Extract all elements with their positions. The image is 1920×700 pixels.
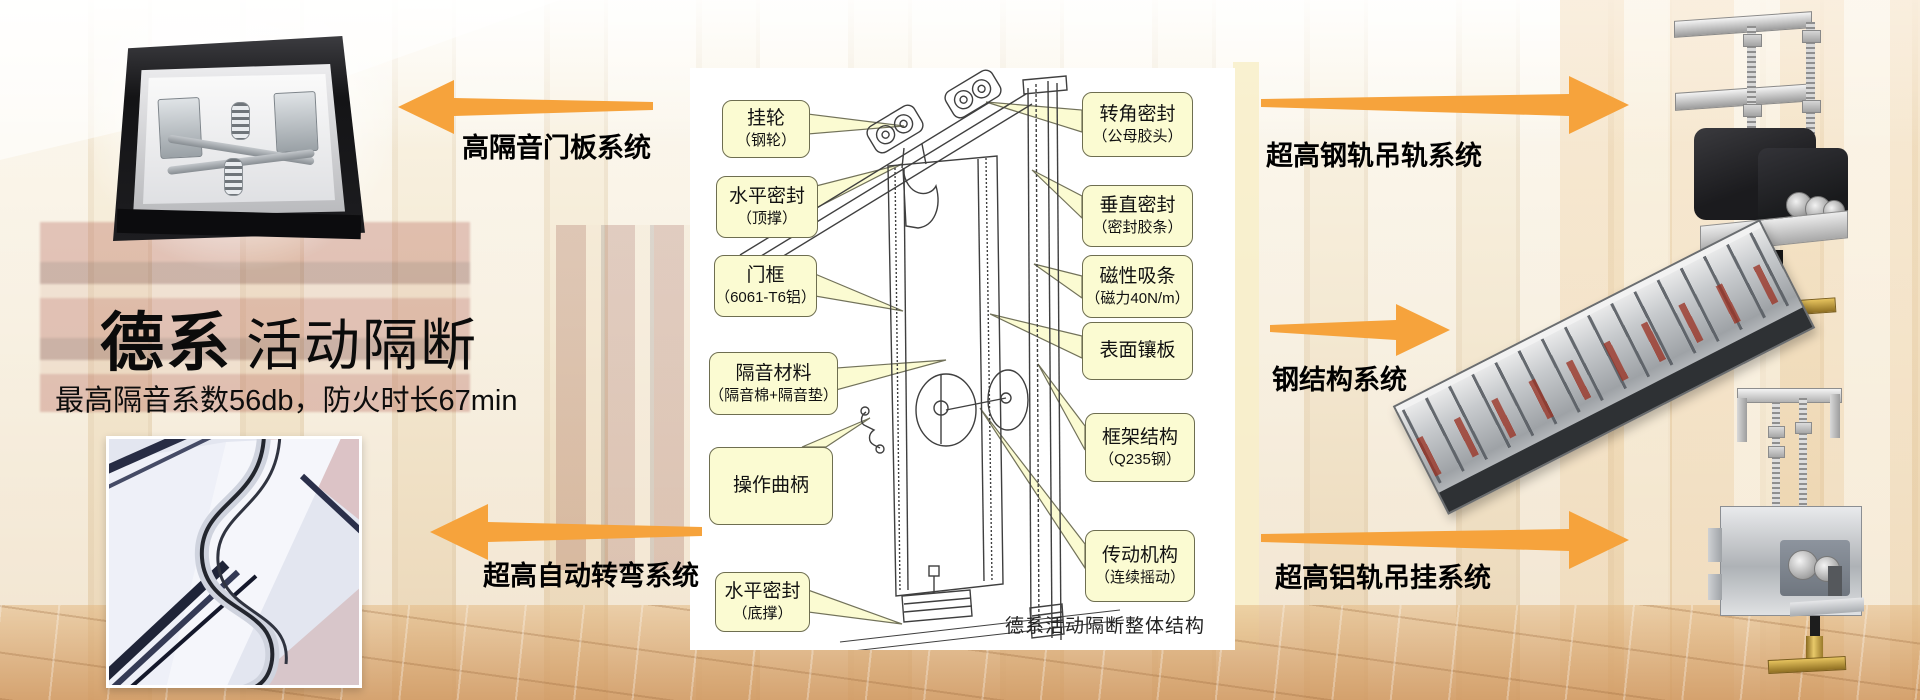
arrow-top-right [1261, 74, 1629, 141]
callout-text: 隔音材料 [735, 362, 811, 385]
callout-magnetic-strip: 磁性吸条 （磁力40N/m） [1082, 255, 1193, 318]
callout-frame-structure: 框架结构 （Q235钢） [1085, 413, 1195, 482]
callout-subtext: （公母胶头） [1092, 128, 1182, 146]
callout-text: 转角密封 [1099, 103, 1175, 126]
spring-coil [224, 158, 243, 196]
product-name: 活动隔断 [246, 301, 478, 382]
threaded-rod [1799, 398, 1807, 508]
mechanism-bracket-left [157, 97, 202, 159]
callout-text: 垂直密封 [1099, 194, 1175, 217]
callout-subtext: （隔音棉+隔音垫） [709, 387, 838, 405]
hex-nut [1743, 104, 1762, 117]
hex-nut [1768, 446, 1785, 458]
right-wall-strip [1233, 62, 1259, 650]
arrow-label-auto-turning-system: 超高自动转弯系统 [483, 554, 699, 593]
callout-corner-seal: 转角密封 （公母胶头） [1082, 92, 1193, 157]
curved-track-illustration [106, 436, 362, 688]
hex-nut [1768, 426, 1785, 438]
callout-text: 表面镶板 [1099, 339, 1175, 362]
hex-nut [1802, 30, 1821, 43]
page-title: 德系 活动隔断 [100, 292, 530, 384]
extrusion-fin [1708, 528, 1722, 562]
pendant-bolt [1810, 616, 1820, 638]
diagram-panel: 挂轮 （钢轮） 水平密封 （顶撑） 门框 （6061-T6铝） 隔音材料 （隔音… [690, 68, 1235, 650]
brass-base-plate [1768, 656, 1847, 674]
callout-subtext: （密封胶条） [1092, 219, 1182, 237]
hex-nut [1795, 422, 1812, 434]
callout-transmission-mechanism: 传动机构 （连续摇动） [1085, 530, 1195, 602]
callout-horizontal-seal-bottom: 水平密封 （底撑） [715, 572, 810, 632]
callout-text: 水平密封 [729, 185, 805, 208]
callout-subtext: （顶撑） [737, 210, 797, 228]
callout-sound-insulation-material: 隔音材料 （隔音棉+隔音垫） [709, 352, 838, 415]
arrow-mid-right [1270, 301, 1450, 364]
aluminum-rail-hanger-photo [1670, 360, 1920, 700]
diagram-caption: 德系活动隔断整体结构 [1005, 611, 1205, 638]
arrow-label-aluminum-rail-system: 超高铝轨吊挂系统 [1275, 556, 1491, 595]
hex-nut [1743, 34, 1762, 47]
brand-subtitle: 最高隔音系数56db，防火时长67min [55, 377, 515, 419]
channel-top [1737, 388, 1842, 403]
callout-subtext: （磁力40N/m） [1085, 290, 1189, 308]
hex-nut [1802, 100, 1821, 113]
callout-subtext: （6061-T6铝） [715, 289, 816, 307]
channel-wall-right [1830, 394, 1840, 438]
callout-hanging-wheel: 挂轮 （钢轮） [722, 100, 810, 158]
callout-text: 框架结构 [1102, 426, 1178, 449]
mechanism-bracket-right [273, 91, 318, 153]
arrow-label-steel-structure-system: 钢结构系统 [1272, 358, 1407, 397]
curved-track-photo [106, 436, 362, 688]
roller-hook [1828, 566, 1842, 596]
callout-horizontal-seal-top: 水平密封 （顶撑） [716, 176, 818, 238]
callout-operating-crank: 操作曲柄 [709, 447, 833, 525]
callout-vertical-seal: 垂直密封 （密封胶条） [1082, 185, 1193, 247]
callout-subtext: （连续摇动） [1095, 569, 1185, 587]
callout-door-frame: 门框 （6061-T6铝） [714, 255, 817, 317]
callout-text: 门框 [746, 264, 784, 287]
arrow-label-steel-rail-system: 超高钢轨吊轨系统 [1266, 134, 1482, 173]
callout-text: 操作曲柄 [733, 474, 809, 497]
callout-subtext: （Q235钢） [1099, 451, 1181, 469]
callout-text: 磁性吸条 [1099, 265, 1175, 288]
callout-surface-panel: 表面镶板 [1082, 322, 1193, 380]
extrusion-fin [1708, 574, 1722, 600]
door-top-mechanism-photo [95, 6, 383, 258]
callout-text: 传动机构 [1102, 544, 1178, 567]
callout-text: 挂轮 [747, 107, 785, 130]
callout-text: 水平密封 [724, 580, 800, 603]
arrow-label-door-panel-system: 高隔音门板系统 [462, 126, 651, 165]
brand-name: 德系 [100, 292, 232, 384]
spring-coil [231, 102, 250, 140]
channel-wall-left [1737, 398, 1747, 442]
callout-subtext: （钢轮） [736, 132, 796, 150]
callout-subtext: （底撑） [732, 605, 792, 623]
